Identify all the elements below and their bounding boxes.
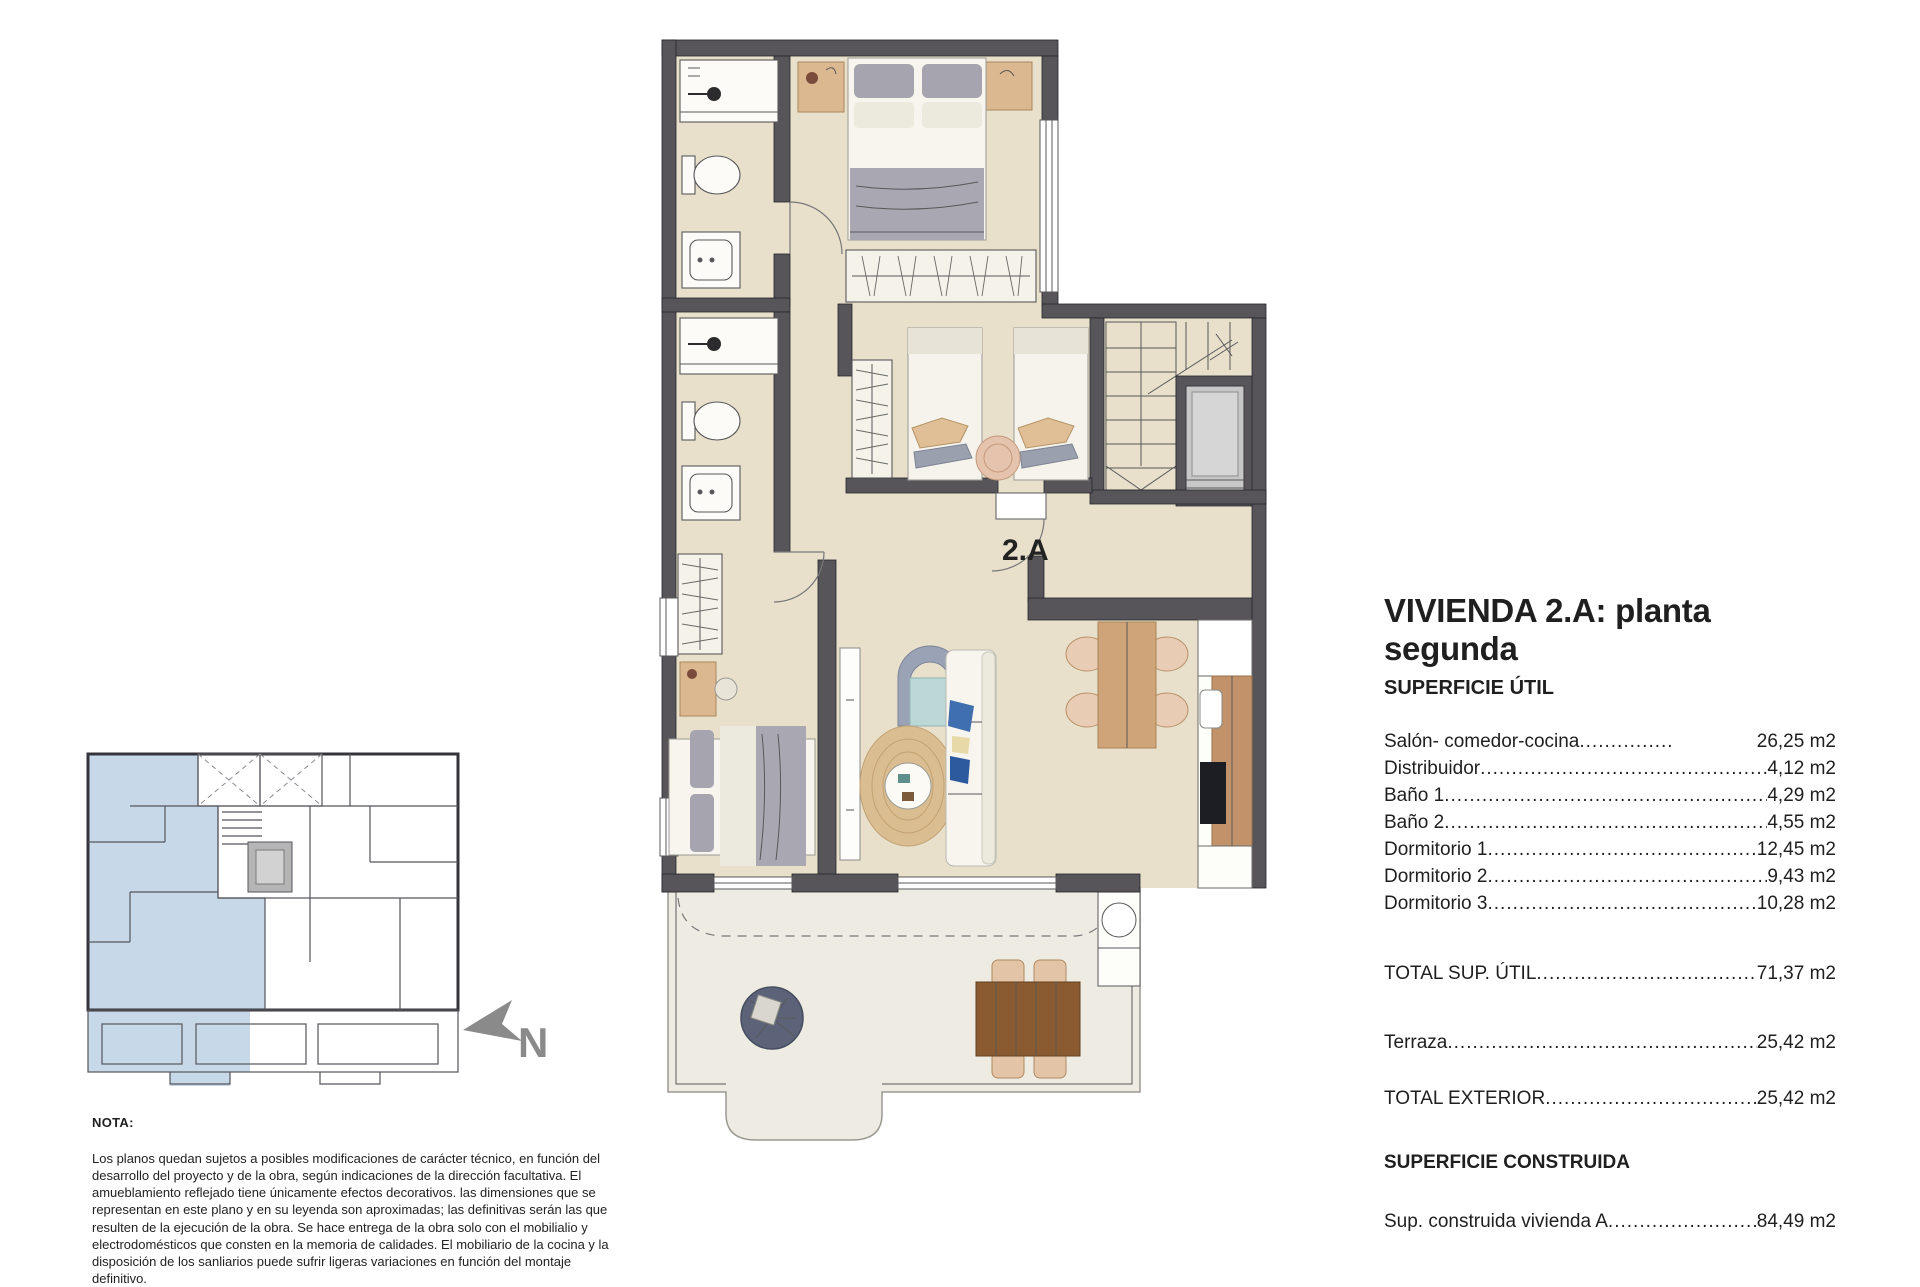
row-label: Distribuidor <box>1384 755 1480 782</box>
leader-dots <box>1487 836 1756 863</box>
area-row: Dormitorio 29,43 m2 <box>1384 863 1836 890</box>
terrace-utility <box>1098 892 1140 986</box>
elevator <box>1176 376 1258 506</box>
leader-dots <box>1487 863 1767 890</box>
row-label: Dormitorio 2 <box>1384 863 1487 890</box>
leader-dots <box>1545 1085 1757 1112</box>
row-value: 4,55 m2 <box>1767 809 1836 836</box>
area-row: Dormitorio 310,28 m2 <box>1384 890 1836 917</box>
closet-bedroom2 <box>852 360 892 478</box>
window-left-1 <box>660 598 678 656</box>
row-value: 25,42 m2 <box>1757 1029 1836 1056</box>
area-row: Salón- comedor-cocina26,25 m2 <box>1384 728 1836 755</box>
key-plan: N <box>70 742 590 1102</box>
row-value: 26,25 m2 <box>1757 728 1836 755</box>
leader-dots <box>1487 890 1756 917</box>
area-row: Dormitorio 112,45 m2 <box>1384 836 1836 863</box>
row-value: 84,49 m2 <box>1757 1208 1836 1235</box>
row-value: 4,12 m2 <box>1767 755 1836 782</box>
single-bed-2 <box>1014 328 1088 480</box>
sofa <box>946 650 996 866</box>
toilet-1 <box>682 156 740 194</box>
area-row: Baño 14,29 m2 <box>1384 782 1836 809</box>
leader-dots <box>1536 960 1756 987</box>
round-rug <box>976 436 1020 480</box>
row-label: TOTAL EXTERIOR <box>1384 1085 1545 1112</box>
row-value: 71,37 m2 <box>1757 960 1836 987</box>
note-heading: NOTA: <box>92 1115 627 1130</box>
note-block: NOTA: Los planos quedan sujetos a posibl… <box>92 1115 627 1287</box>
double-bed <box>848 58 986 240</box>
row-value: 10,28 m2 <box>1757 890 1836 917</box>
leader-dots <box>1579 728 1675 755</box>
double-bed-3 <box>669 726 815 866</box>
row-value: 9,43 m2 <box>1767 863 1836 890</box>
row-label: Baño 2 <box>1384 809 1444 836</box>
row-label: Baño 1 <box>1384 782 1444 809</box>
shower-1 <box>680 60 778 122</box>
window-bedroom1 <box>1040 120 1058 292</box>
closet-bedroom1 <box>846 250 1036 302</box>
page-title: VIVIENDA 2.A: planta segunda <box>1384 592 1836 668</box>
terrace <box>668 888 1140 1140</box>
row-label: Dormitorio 3 <box>1384 890 1487 917</box>
north-label: N <box>518 1019 548 1066</box>
row-label: Sup. construida vivienda A <box>1384 1208 1608 1235</box>
leader-dots <box>1480 755 1767 782</box>
nightstand <box>798 62 844 112</box>
constructed-row: Sup. construida vivienda A84,49 m2 <box>1384 1208 1836 1235</box>
leader-dots <box>1444 809 1767 836</box>
total-exterior-row: TOTAL EXTERIOR25,42 m2 <box>1384 1085 1836 1112</box>
row-value: 4,29 m2 <box>1767 782 1836 809</box>
tv-console <box>840 648 860 860</box>
sink-2 <box>682 466 740 520</box>
row-label: Terraza <box>1384 1029 1447 1056</box>
leader-dots <box>1444 782 1767 809</box>
row-label: TOTAL SUP. ÚTIL <box>1384 960 1536 987</box>
note-body: Los planos quedan sujetos a posibles mod… <box>92 1150 627 1287</box>
leader-dots <box>1447 1029 1756 1056</box>
closet-bedroom3 <box>678 554 722 654</box>
toilet-2 <box>682 402 740 440</box>
single-bed-1 <box>908 328 982 480</box>
nightstand <box>986 62 1032 110</box>
floor-plan: 2.A <box>650 30 1290 1160</box>
sink-1 <box>682 232 740 288</box>
shower-2 <box>680 318 778 374</box>
area-row: Distribuidor4,12 m2 <box>1384 755 1836 782</box>
total-util-row: TOTAL SUP. ÚTIL71,37 m2 <box>1384 960 1836 987</box>
area-summary: VIVIENDA 2.A: planta segunda SUPERFICIE … <box>1384 592 1836 1235</box>
leader-dots <box>1608 1208 1757 1235</box>
row-label: Salón- comedor-cocina <box>1384 728 1579 755</box>
north-arrow-icon <box>463 1000 522 1041</box>
terrace-pouf <box>741 987 803 1049</box>
row-value: 12,45 m2 <box>1757 836 1836 863</box>
keyplan-highlight <box>88 754 265 1086</box>
row-value: 25,42 m2 <box>1757 1085 1836 1112</box>
row-label: Dormitorio 1 <box>1384 836 1487 863</box>
unit-label: 2.A <box>1002 534 1049 567</box>
section-superficie-construida: SUPERFICIE CONSTRUIDA <box>1384 1152 1836 1174</box>
terraza-row: Terraza25,42 m2 <box>1384 1029 1836 1056</box>
kitchen <box>1198 620 1252 888</box>
area-row: Baño 24,55 m2 <box>1384 809 1836 836</box>
north-arrow: N <box>463 1000 548 1066</box>
coffee-table <box>885 763 931 809</box>
section-superficie-util: SUPERFICIE ÚTIL <box>1384 677 1836 700</box>
